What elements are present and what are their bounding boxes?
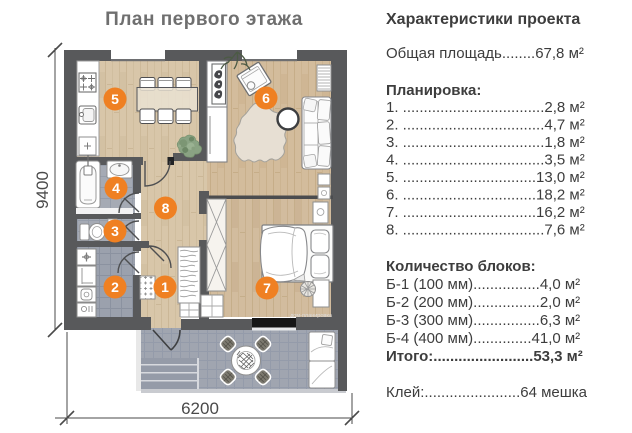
svg-text:8: 8 [162,200,170,216]
svg-text:4. ...........................: 4. ..................................3,5… [386,152,585,169]
svg-text:3: 3 [111,223,119,239]
svg-text:6. ...........................: 6. ................................18,2 … [386,187,585,204]
svg-text:3. ...........................: 3. ..................................1,8… [386,134,585,151]
svg-text:4: 4 [112,180,120,196]
svg-text:дом-планировка: дом-планировка [290,313,333,319]
svg-text:5: 5 [111,91,119,107]
svg-text:2: 2 [111,279,119,295]
svg-text:8. ...........................: 8. ..................................7,6… [386,222,585,239]
svg-text:1. ...........................: 1. ..................................2,8… [386,99,585,116]
svg-text:5. ...........................: 5. ................................13,0 … [386,169,585,186]
svg-text:6: 6 [262,90,270,106]
svg-text:Планировка:: Планировка: [386,82,481,99]
svg-text:Б-2 (200 мм)................2,: Б-2 (200 мм)................2,0 м² [386,294,580,311]
svg-text:Клей:.......................64: Клей:.......................64 мешка [386,384,588,401]
svg-text:6200: 6200 [181,399,219,418]
svg-text:2. ...........................: 2. ..................................4,7… [386,117,585,134]
svg-text:Характеристики проекта: Характеристики проекта [386,11,580,28]
svg-text:Итого:........................: Итого:........................53,3 м² [386,348,583,365]
svg-text:План первого этажа: План первого этажа [105,9,303,30]
svg-text:Б-3 (300 мм)................6,: Б-3 (300 мм)................6,3 м² [386,312,580,329]
svg-text:Количество блоков:: Количество блоков: [386,258,536,275]
svg-text:Общая площадь........67,8 м²: Общая площадь........67,8 м² [386,45,584,62]
svg-text:1: 1 [161,279,169,295]
svg-text:Б-4 (400 мм)..............41,0: Б-4 (400 мм)..............41,0 м² [386,330,580,347]
svg-text:Б-1 (100 мм)................4,: Б-1 (100 мм)................4,0 м² [386,276,580,293]
svg-text:7. ...........................: 7. ................................16,2 … [386,204,585,221]
svg-text:9400: 9400 [33,171,52,209]
svg-text:7: 7 [263,280,271,296]
